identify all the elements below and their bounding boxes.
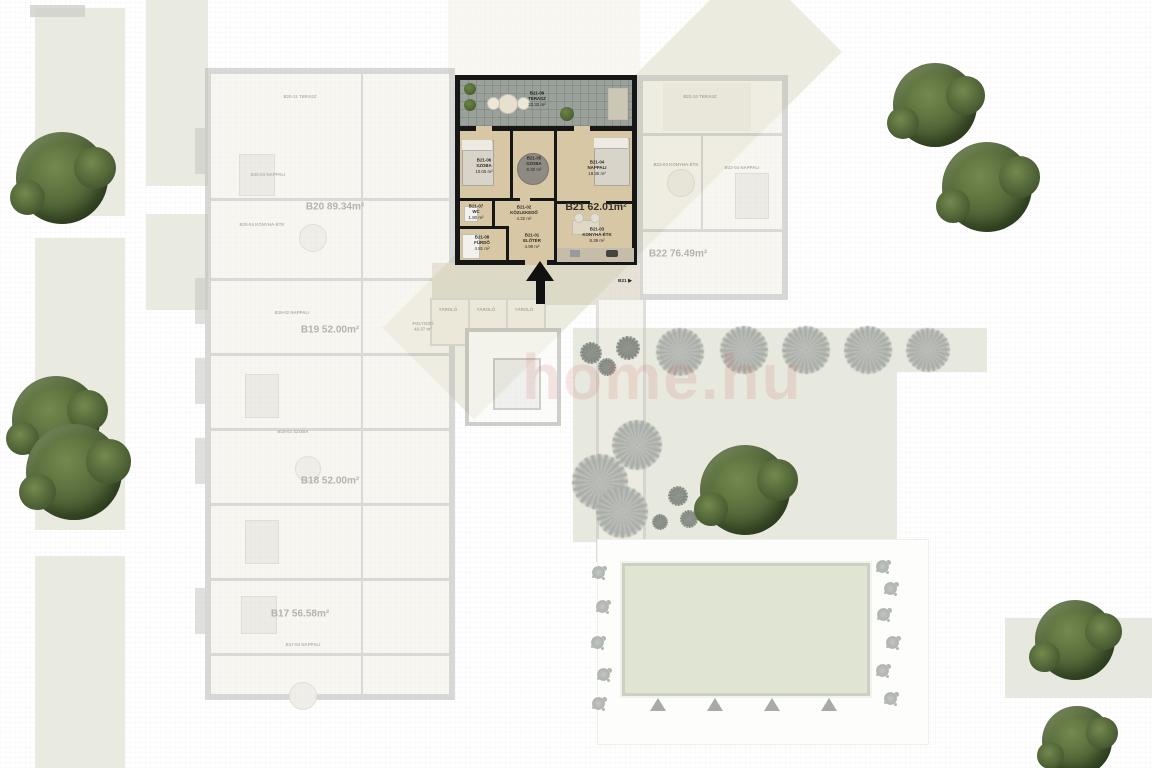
terrace-chair bbox=[487, 97, 500, 110]
faded-room-label: B19-02 NAPPALI bbox=[275, 310, 310, 316]
faded-room-label: B17-04 NAPPALI bbox=[286, 642, 321, 648]
bush-icon bbox=[876, 560, 889, 573]
entrance-tag: B21 ▶ bbox=[618, 278, 632, 283]
building-b22-wing bbox=[637, 75, 788, 300]
entrance-direction-icon: ▶ bbox=[628, 278, 632, 283]
bush-icon bbox=[877, 608, 890, 621]
stair-elevator-core bbox=[465, 328, 561, 426]
gray-tree-icon bbox=[656, 328, 704, 376]
tree-icon bbox=[942, 142, 1032, 232]
sink-icon bbox=[570, 250, 580, 257]
bush-icon bbox=[886, 636, 899, 649]
tree-icon bbox=[16, 132, 108, 224]
terrace-table bbox=[498, 94, 518, 114]
tree-marker-icon bbox=[707, 698, 723, 711]
room-label-terasz: B21-09 TERASZ 22.32 m² bbox=[528, 90, 546, 107]
stove-icon bbox=[606, 250, 618, 257]
tree-marker-icon bbox=[650, 698, 666, 711]
room-label-eloter: B21-01 ELŐTÉR 4.99 m² bbox=[523, 232, 541, 249]
tree-icon bbox=[893, 63, 977, 147]
faded-room-label: B20-04 KONYHA-ÉTK bbox=[240, 222, 285, 228]
bush-icon bbox=[884, 582, 897, 595]
bush-icon bbox=[592, 566, 605, 579]
gray-tree-icon bbox=[616, 336, 640, 360]
unit-total-area: B21 62.01m² bbox=[565, 201, 626, 213]
plant-icon bbox=[560, 107, 574, 121]
room-label-wc: B21-07 WC 1.80 m² bbox=[469, 203, 484, 220]
entrance-arrow-icon bbox=[536, 280, 545, 304]
unit-total-label: B20 89.34m² bbox=[306, 202, 364, 213]
bush-icon bbox=[597, 668, 610, 681]
gray-tree-icon bbox=[782, 326, 830, 374]
unit-total-label: B19 52.00m² bbox=[301, 325, 359, 336]
pillow bbox=[462, 140, 492, 151]
storage-label: TÁROLÓ bbox=[439, 307, 458, 313]
room-label-furdo: B21-08 FÜRDŐ 4.81 m² bbox=[474, 234, 490, 251]
bush-icon bbox=[876, 664, 889, 677]
room-terasz bbox=[460, 80, 632, 126]
pool-lawn bbox=[622, 563, 870, 696]
gray-tree-icon bbox=[580, 342, 602, 364]
gray-tree-icon bbox=[652, 514, 668, 530]
sun-lounger bbox=[608, 88, 628, 120]
dining-chair bbox=[574, 213, 584, 223]
gray-tree-icon bbox=[844, 326, 892, 374]
plant-icon bbox=[464, 99, 476, 111]
faded-room-label: B20-03 NAPPALI bbox=[251, 172, 286, 178]
gray-tree-icon bbox=[668, 486, 688, 506]
corridor-label: FOLYOSÓ 42.37 m² bbox=[412, 321, 433, 332]
tree-icon bbox=[1035, 600, 1115, 680]
kitchen-counter bbox=[557, 248, 634, 262]
tree-icon bbox=[1042, 706, 1112, 768]
storage-label: TÁROLÓ bbox=[515, 307, 534, 313]
storage-label: TÁROLÓ bbox=[477, 307, 496, 313]
bush-icon bbox=[592, 697, 605, 710]
gray-tree-icon bbox=[906, 328, 950, 372]
room-label-szoba-2: B21-05 SZOBA 9.30 m² bbox=[526, 155, 541, 172]
gray-tree-icon bbox=[596, 486, 648, 538]
faded-room-label: B22-03 KONYHA-ÉTK bbox=[654, 162, 699, 168]
building-left-wing bbox=[205, 68, 455, 700]
tree-marker-icon bbox=[821, 698, 837, 711]
bush-icon bbox=[596, 600, 609, 613]
unit-total-label: B22 76.49m² bbox=[649, 249, 707, 260]
room-label-nappali: B21-04 NAPPALI 18.35 m² bbox=[588, 159, 607, 176]
site-plan: B20 89.34m² B22 76.49m² B19 52.00m² B18 … bbox=[0, 0, 1152, 768]
bush-icon bbox=[884, 692, 897, 705]
faded-room-label: B22-10 TERASZ bbox=[683, 94, 716, 100]
elevator bbox=[493, 358, 541, 410]
faded-room-label: B20-11 TERASZ bbox=[283, 94, 316, 100]
faded-room-label: B22-04 NAPPALI bbox=[725, 165, 760, 171]
pillow bbox=[594, 138, 628, 149]
gray-tree-icon bbox=[720, 326, 768, 374]
faded-room-label: B18-02 SZOBA bbox=[277, 429, 308, 435]
bush-icon bbox=[591, 636, 604, 649]
room-label-kozlekedo: B21-02 KÖZLEKEDŐ 4.32 m² bbox=[510, 204, 538, 221]
tree-icon bbox=[700, 445, 790, 535]
unit-b21[interactable]: B21-09 TERASZ 22.32 m² B21-06 SZOBA 10.0… bbox=[455, 75, 637, 265]
tree-icon bbox=[26, 424, 122, 520]
gray-tree-icon bbox=[598, 358, 616, 376]
dining-chair bbox=[590, 213, 600, 223]
plant-icon bbox=[464, 83, 476, 95]
unit-total-label: B17 56.58m² bbox=[271, 609, 329, 620]
entrance-arrow-icon bbox=[526, 261, 554, 281]
room-label-szoba-1: B21-06 SZOBA 10.05 m² bbox=[475, 157, 492, 174]
room-label-konyha: B21-03 KONYHA-ÉTK 8.39 m² bbox=[582, 226, 611, 243]
tree-marker-icon bbox=[764, 698, 780, 711]
unit-total-label: B18 52.00m² bbox=[301, 476, 359, 487]
